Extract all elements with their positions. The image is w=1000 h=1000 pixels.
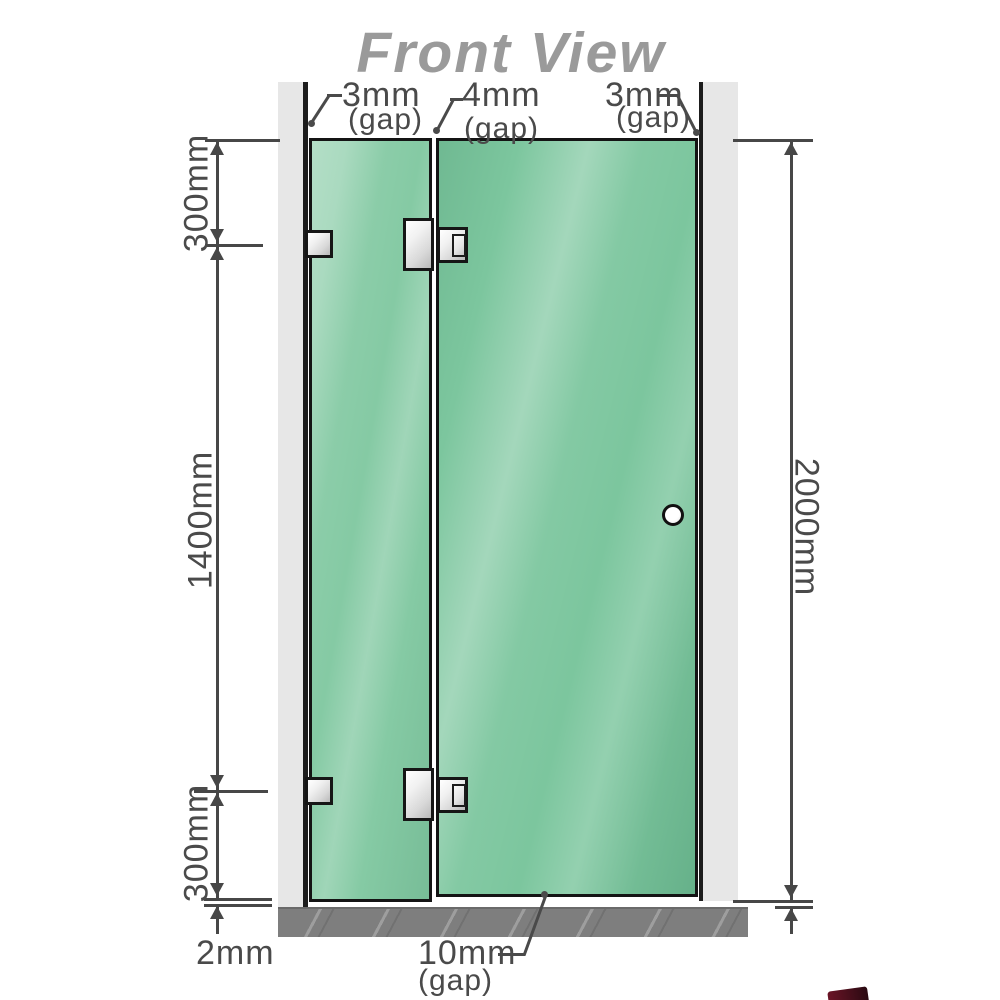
leader-stub	[327, 94, 342, 97]
wall-right	[703, 82, 738, 901]
glass-panel-door	[436, 138, 698, 897]
gap-sublabel-top-left: (gap)	[348, 103, 423, 137]
hinge-bottom-plate-right	[437, 777, 468, 813]
dim-label-1400mm: 1400mm	[182, 451, 221, 589]
dim-right-tick-bottom	[733, 900, 813, 903]
wall-bracket-top	[305, 230, 333, 258]
corner-mark	[827, 986, 869, 1000]
dim-label-2000mm: 2000mm	[787, 458, 826, 596]
dim-label-2mm: 2mm	[196, 934, 275, 973]
front-view-diagram: Front View 300mm 1400mm 300mm 2mm	[0, 0, 1000, 1000]
dim-right-tick-top	[733, 139, 813, 142]
dim-arrow	[784, 908, 798, 921]
dim-label-300mm-top: 300mm	[178, 134, 217, 252]
hinge-top-plate-right	[437, 227, 468, 263]
wall-left	[278, 82, 303, 907]
dim-arrow	[784, 142, 798, 155]
leader-dot	[693, 129, 700, 136]
gap-sublabel-top-middle: (gap)	[464, 112, 539, 146]
hinge-top-clamp	[452, 234, 466, 257]
hinge-bottom-clamp	[452, 784, 466, 807]
leader-line	[436, 100, 455, 131]
wall-bracket-bottom	[305, 777, 333, 805]
hinge-top-plate-left	[403, 218, 434, 271]
dim-arrow	[784, 885, 798, 898]
dim-label-300mm-bottom: 300mm	[178, 784, 217, 902]
gap-label-top-middle: 4mm	[462, 76, 541, 115]
door-knob	[662, 504, 684, 526]
gap-sublabel-top-right: (gap)	[616, 101, 691, 135]
floor-base	[278, 907, 748, 937]
dim-arrow	[210, 906, 224, 919]
hinge-bottom-plate-left	[403, 768, 434, 821]
leader-line	[310, 94, 331, 124]
gap-sublabel-bottom: (gap)	[418, 964, 493, 998]
